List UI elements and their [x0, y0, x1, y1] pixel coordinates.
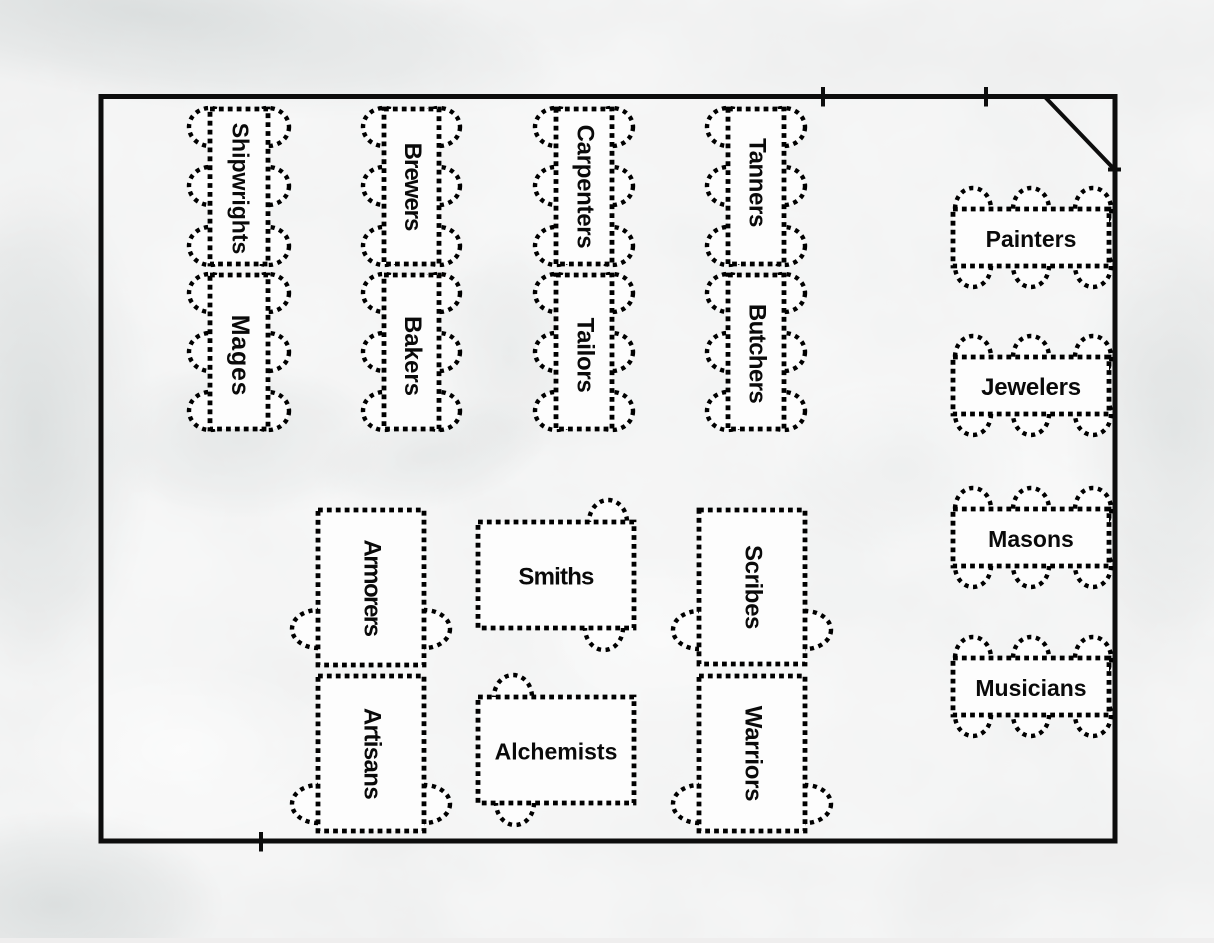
svg-text:Jewelers: Jewelers [981, 374, 1081, 401]
svg-text:Armorers: Armorers [358, 539, 385, 636]
svg-text:Musicians: Musicians [975, 675, 1086, 701]
svg-text:Warriors: Warriors [739, 706, 766, 801]
svg-text:Painters: Painters [986, 226, 1077, 252]
svg-text:Smiths: Smiths [518, 564, 594, 591]
svg-text:Butchers: Butchers [743, 304, 770, 403]
svg-text:Masons: Masons [988, 526, 1074, 552]
svg-text:Tanners: Tanners [743, 138, 770, 227]
svg-text:Bakers: Bakers [399, 316, 426, 396]
svg-text:Mages: Mages [226, 315, 254, 397]
svg-text:Carpenters: Carpenters [571, 125, 598, 249]
svg-text:Shipwrights: Shipwrights [228, 123, 254, 255]
svg-text:Tailors: Tailors [571, 318, 598, 393]
svg-text:Scribes: Scribes [739, 545, 766, 629]
svg-text:Artisans: Artisans [358, 708, 385, 799]
svg-text:Alchemists: Alchemists [495, 738, 618, 764]
svg-text:Brewers: Brewers [399, 143, 426, 231]
